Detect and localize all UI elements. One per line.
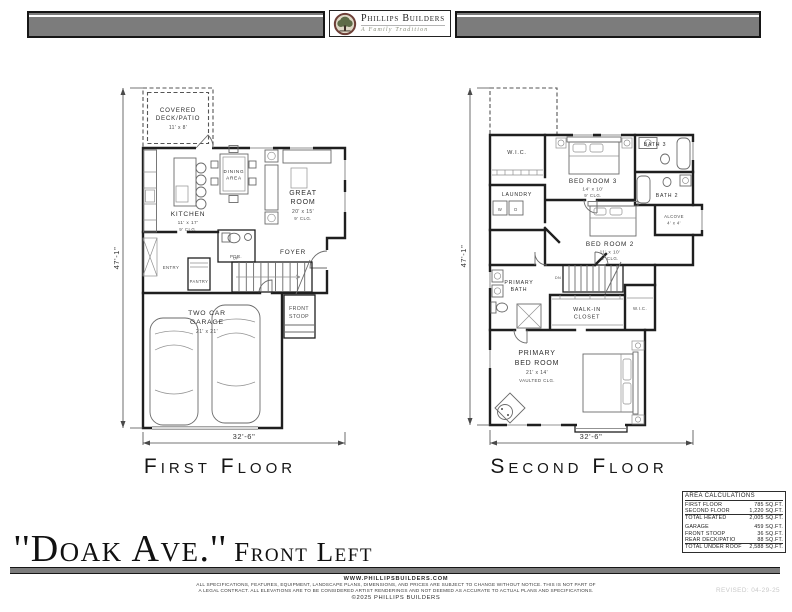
area-row-value: 1,220 SQ.FT.	[749, 508, 783, 514]
great-room-size: 20' x 15'	[292, 209, 314, 215]
dimension-height: 47'-1"	[112, 88, 143, 428]
header-bar-left	[27, 11, 325, 38]
wic-right-label: W.I.C.	[633, 306, 647, 311]
dining-label: DINING	[224, 169, 245, 174]
dim-width-label: 32'-6"	[580, 432, 603, 441]
area-row-total-heated: TOTAL HEATED 2,005 SQ.FT.	[685, 514, 783, 521]
area-row-value: 2,005 SQ.FT.	[749, 515, 783, 521]
primary-bath-label: PRIMARY	[504, 280, 533, 286]
deck-label: DECK/PATIO	[156, 115, 201, 122]
wic-label: W.I.C.	[507, 150, 526, 156]
alcove-label: ALCOVE	[664, 214, 684, 219]
bedroom2-label: BED ROOM 2	[586, 241, 634, 248]
dryer-label: D	[514, 207, 517, 212]
closet-hatch	[143, 238, 208, 276]
kitchen-fixtures	[144, 150, 207, 232]
doors	[514, 200, 608, 343]
stairs-up-label: UP	[233, 257, 239, 261]
dim-height-label: 47'-1"	[112, 247, 121, 270]
copyright-text: ©2025 PHILLIPS BUILDERS	[0, 595, 792, 601]
stairs-down-label: DN	[555, 276, 561, 280]
area-row: REAR DECK/PATIO 88 SQ.FT.	[685, 537, 783, 543]
powder-room-fixtures	[222, 233, 252, 243]
walkin-closet-label: WALK-IN	[573, 307, 601, 313]
laundry-label: LAUNDRY	[502, 192, 532, 198]
area-row-value: 2,588 SQ.FT.	[749, 544, 783, 550]
bed	[588, 202, 638, 237]
plan-name: ''Doak Ave.''	[14, 528, 227, 570]
deck-size: 11' x 8'	[169, 125, 187, 131]
area-table-title: AREA CALCULATIONS	[685, 493, 783, 501]
area-row-label: TOTAL UNDER ROOF	[685, 544, 742, 550]
stoop-steps	[284, 325, 315, 332]
garage-label: GARAGE	[190, 319, 224, 326]
bath3-label: BATH 3	[644, 142, 667, 148]
dimension-height: 47'-1"	[459, 88, 490, 425]
foyer-label: FOYER	[280, 249, 306, 256]
garage-size: 21' x 21'	[196, 329, 218, 335]
pantry-label: PANTRY	[190, 279, 209, 284]
first-floor-title: First Floor	[128, 455, 312, 479]
footer-text-block: WWW.PHILLIPSBUILDERS.COM ALL SPECIFICATI…	[0, 576, 792, 601]
primary-bedroom-label: PRIMARY	[518, 350, 555, 357]
primary-bedroom-ceiling: VAULTED CLG.	[519, 378, 555, 383]
second-floor-title: Second Floor	[484, 455, 674, 479]
floor-plan-sheet: Phillips Builders A Family Tradition	[0, 0, 792, 612]
great-room-label: ROOM	[291, 199, 316, 206]
first-floor-plan: 47'-1" 32'-6" COVERED DECK/PATIO 11' x 8…	[110, 82, 380, 482]
area-row-value: 88 SQ.FT.	[757, 537, 783, 543]
bedroom2-ceiling: 9' CLG.	[601, 256, 619, 261]
area-row-label: REAR DECK/PATIO	[685, 537, 735, 543]
great-room-ceiling: 9' CLG.	[294, 216, 312, 221]
primary-bath-fixtures	[491, 270, 541, 328]
primary-bedroom-label: BED ROOM	[515, 360, 560, 367]
washer-label: W	[498, 207, 502, 212]
dining-label: AREA	[226, 176, 242, 181]
open-below-area	[490, 88, 557, 135]
area-row-label: SECOND FLOOR	[685, 508, 730, 514]
bedroom2-size: 11' x 10'	[600, 250, 621, 256]
area-calculations-table: AREA CALCULATIONS FIRST FLOOR 785 SQ.FT.…	[682, 491, 786, 553]
staircase	[563, 262, 623, 294]
area-row-label: TOTAL HEATED	[685, 515, 726, 521]
deck-label: COVERED	[160, 107, 196, 114]
walkin-closet-label: CLOSET	[574, 315, 600, 321]
second-floor-plan: 47'-1" 32'-6" W.I.C. LAUNDRY W D BED ROO…	[455, 82, 725, 482]
elevation-name: Front Left	[234, 537, 373, 567]
primary-bedroom-size: 21' x 14'	[526, 370, 548, 376]
corner-tub	[495, 393, 525, 423]
bed	[583, 341, 644, 424]
bed	[556, 137, 632, 174]
garage-label: TWO CAR	[188, 310, 226, 317]
tree-logo-icon	[333, 12, 357, 36]
dim-width-label: 32'-6"	[233, 432, 256, 441]
disclaimer-line: A LEGAL CONTRACT. ALL ELEVATIONS ARE TO …	[0, 588, 792, 594]
closet-shelving	[492, 170, 543, 175]
primary-bath-label: BATH	[511, 287, 528, 293]
bedroom3-size: 14' x 10'	[582, 187, 603, 193]
entry-label: ENTRY	[163, 265, 180, 270]
interior-walls	[143, 230, 315, 338]
footer-divider-bar	[10, 567, 780, 574]
area-row-total-under-roof: TOTAL UNDER ROOF 2,588 SQ.FT.	[685, 543, 783, 550]
kitchen-size: 11' x 17'	[178, 220, 199, 226]
interior-walls	[490, 135, 693, 330]
dimension-width: 32'-6"	[143, 432, 345, 446]
logo-name: Phillips Builders	[361, 14, 445, 26]
dimension-width: 32'-6"	[490, 430, 693, 446]
dim-height-label: 47'-1"	[459, 245, 468, 268]
kitchen-label: KITCHEN	[171, 211, 206, 218]
header-bar-right	[455, 11, 761, 38]
alcove-size: 4' x 4'	[667, 221, 681, 226]
builder-logo: Phillips Builders A Family Tradition	[329, 10, 451, 37]
stoop-label: STOOP	[289, 314, 309, 320]
bedroom3-ceiling: 9' CLG.	[584, 193, 602, 198]
stoop-label: FRONT	[289, 306, 309, 312]
logo-tagline: A Family Tradition	[361, 27, 445, 33]
revised-date: REVISED: 04-29-25	[716, 587, 780, 594]
sheet-title: ''Doak Ave.''Front Left	[14, 527, 373, 571]
dining-furniture	[211, 146, 256, 203]
car	[150, 318, 198, 425]
kitchen-ceiling: 9' CLG.	[179, 227, 197, 232]
great-room-label: GREAT	[289, 190, 317, 197]
bedroom3-label: BED ROOM 3	[569, 178, 617, 185]
bath2-label: BATH 2	[656, 193, 679, 199]
